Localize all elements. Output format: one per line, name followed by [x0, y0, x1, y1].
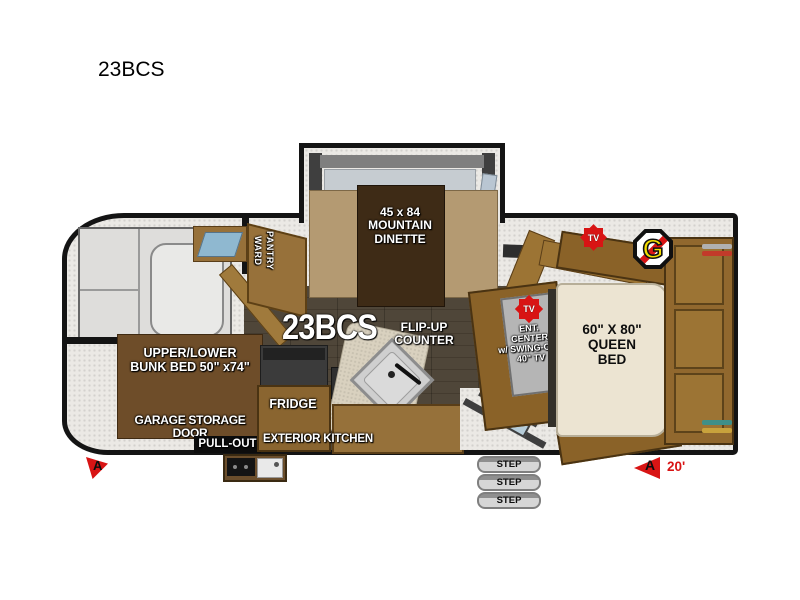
- tv-icon-label: TV: [519, 299, 539, 319]
- length-label: 20': [667, 459, 685, 474]
- faucet-knob: [388, 371, 395, 378]
- step: STEP: [477, 474, 541, 491]
- brand-badge: G: [633, 229, 673, 269]
- wardrobe-door: [674, 309, 724, 369]
- ward-pantry-label: WARD PANTRY: [252, 231, 276, 270]
- exterior-kitchen-unit: [223, 454, 287, 482]
- brand-badge-letter: G: [633, 229, 673, 269]
- step-label: STEP: [479, 494, 539, 507]
- model-label-large: 23BCS: [282, 308, 377, 347]
- shelf-item: [702, 420, 732, 425]
- exterior-cooktop: [227, 458, 255, 476]
- tv-icon-label: TV: [584, 228, 603, 247]
- exterior-sink: [257, 458, 283, 478]
- step-label: STEP: [479, 476, 539, 489]
- step: STEP: [477, 492, 541, 509]
- burner: [244, 465, 248, 469]
- floorplan: 23BCS WARD PANTRY UPPER/LOWER BUNK BED 5…: [0, 0, 800, 600]
- shelf-item: [702, 251, 732, 256]
- entry-steps: STEP STEP STEP: [477, 456, 541, 510]
- griddle-lid: [263, 348, 325, 360]
- tv-icon-ent-center: TV: [519, 299, 539, 319]
- fridge-label: FRIDGE: [259, 397, 327, 411]
- queen-bed-label: 60" X 80" QUEEN BED: [566, 322, 658, 367]
- bathroom-sink-cabinet: [193, 226, 247, 262]
- exterior-kitchen-label: EXTERIOR KITCHEN: [258, 433, 378, 446]
- bathroom-sink-counter: [197, 232, 243, 257]
- burner: [233, 465, 237, 469]
- kitchen-base-counter: [332, 404, 464, 454]
- tv-icon-bedroom: TV: [584, 228, 603, 247]
- step: STEP: [477, 456, 541, 473]
- step-label: STEP: [479, 458, 539, 471]
- marker-a-left-label: A: [93, 459, 102, 474]
- dinette-label: 45 x 84 MOUNTAIN DINETTE: [348, 206, 452, 246]
- page-title: 23BCS: [98, 58, 165, 82]
- shower-glass-divider: [80, 289, 140, 291]
- shelf-item: [702, 244, 732, 249]
- flip-top-griddle: [260, 345, 328, 389]
- exterior-faucet: [274, 462, 279, 467]
- sofa-back: [320, 155, 484, 168]
- shelf-item: [702, 428, 732, 433]
- flip-up-counter-label: FLIP-UP COUNTER: [382, 321, 466, 348]
- shower-glass-divider: [138, 229, 140, 341]
- bunk-bed-label: UPPER/LOWER BUNK BED 50" x74": [122, 346, 258, 374]
- marker-a-right-label: A: [645, 458, 655, 474]
- pull-out-label: PULL-OUT: [194, 438, 261, 451]
- rear-wardrobe: [664, 237, 734, 445]
